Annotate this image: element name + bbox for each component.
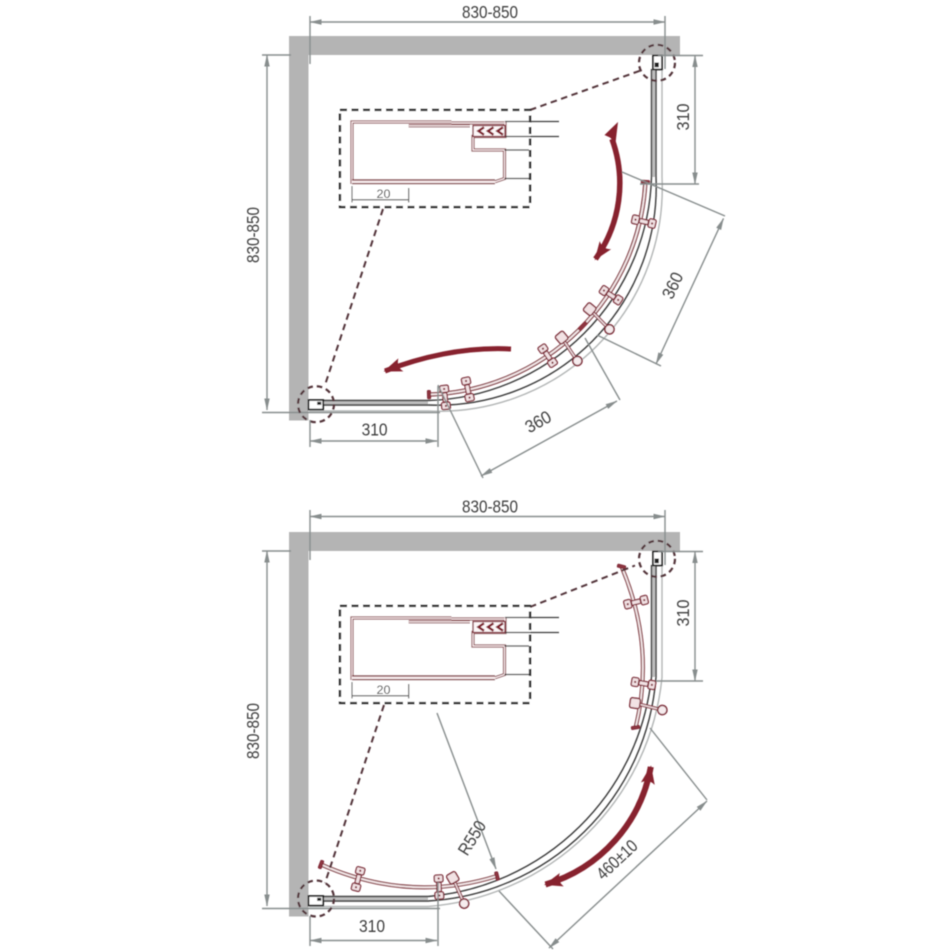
svg-text:830-850: 830-850 bbox=[462, 497, 518, 517]
svg-text:830-850: 830-850 bbox=[243, 207, 263, 263]
svg-text:310: 310 bbox=[673, 103, 693, 130]
svg-text:20: 20 bbox=[377, 187, 391, 201]
svg-text:830-850: 830-850 bbox=[243, 703, 263, 759]
svg-text:310: 310 bbox=[673, 599, 693, 626]
svg-text:830-850: 830-850 bbox=[462, 2, 518, 22]
svg-text:310: 310 bbox=[362, 420, 388, 440]
svg-text:310: 310 bbox=[359, 916, 385, 936]
